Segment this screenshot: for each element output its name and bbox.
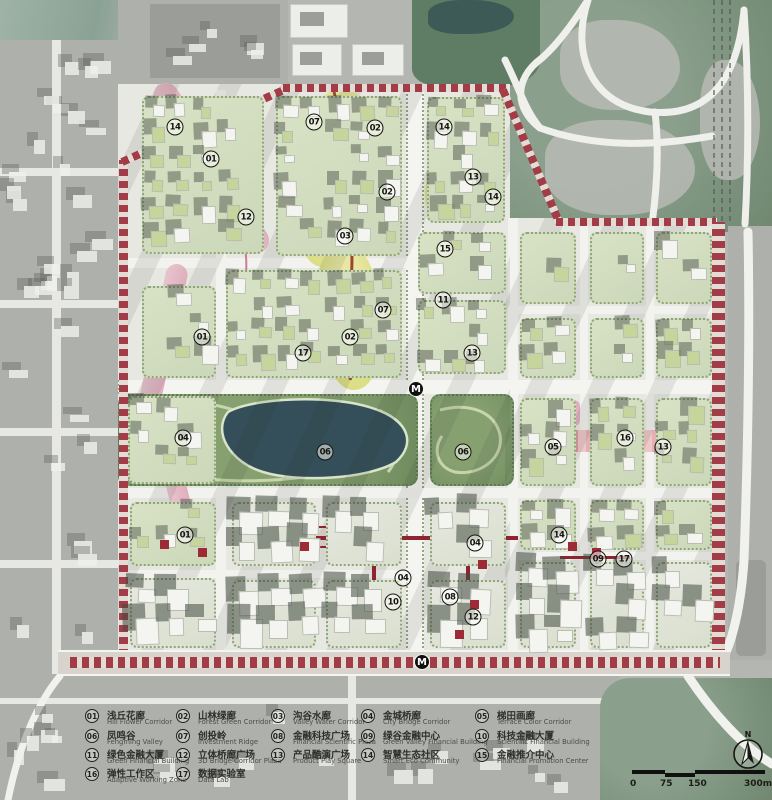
map-marker: 06 <box>317 444 334 461</box>
highlighted-building <box>160 540 169 549</box>
map-marker: 17 <box>616 551 633 568</box>
metro-station-icon: M <box>408 381 424 397</box>
map-marker: 01 <box>177 527 194 544</box>
map-marker: 13 <box>655 439 672 456</box>
map-marker: 14 <box>436 119 453 136</box>
map-marker: 01 <box>194 329 211 346</box>
map-marker: 17 <box>295 345 312 362</box>
map-marker: 07 <box>306 114 323 131</box>
highlighted-building <box>455 630 464 639</box>
map-marker: 04 <box>175 430 192 447</box>
map-marker: 13 <box>465 169 482 186</box>
map-marker: 16 <box>617 430 634 447</box>
map-marker: 03 <box>337 228 354 245</box>
map-marker: 06 <box>455 444 472 461</box>
map-marker: 08 <box>442 589 459 606</box>
map-marker: 12 <box>238 209 255 226</box>
highlighted-building <box>568 542 577 551</box>
map-marker: 07 <box>375 302 392 319</box>
map-marker: 15 <box>437 241 454 258</box>
map-marker: 04 <box>395 570 412 587</box>
marker-layer: 1401120702020314131415111301170207040106… <box>0 0 772 800</box>
map-marker: 10 <box>385 594 402 611</box>
map-marker: 13 <box>464 345 481 362</box>
highlighted-building <box>300 542 309 551</box>
highlighted-building <box>198 548 207 557</box>
map-marker: 12 <box>465 609 482 626</box>
map-marker: 02 <box>367 120 384 137</box>
metro-station-icon: M <box>414 654 430 670</box>
map-marker: 02 <box>379 184 396 201</box>
map-marker: 01 <box>203 151 220 168</box>
highlighted-building <box>478 560 487 569</box>
masterplan-map: N 0 75 150 300m 01浅丘花廊Hill Flower Corrid… <box>0 0 772 800</box>
map-marker: 11 <box>435 292 452 309</box>
map-marker: 04 <box>467 535 484 552</box>
map-marker: 09 <box>590 551 607 568</box>
map-marker: 02 <box>342 329 359 346</box>
map-marker: 14 <box>167 119 184 136</box>
map-marker: 14 <box>551 527 568 544</box>
map-marker: 05 <box>545 439 562 456</box>
map-marker: 14 <box>485 189 502 206</box>
